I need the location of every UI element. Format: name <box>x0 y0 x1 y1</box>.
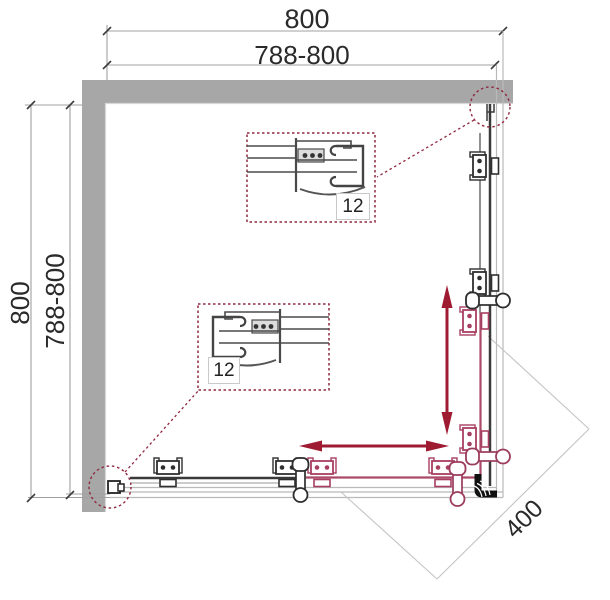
dimension-height-total: 800 <box>6 243 34 363</box>
dimension-width-total: 800 <box>247 5 367 33</box>
wall-profile-end-bracket <box>108 481 124 493</box>
glass-thickness-label-top: 12 <box>336 193 370 220</box>
glass-clamp <box>470 152 499 180</box>
glass-thickness-label-bottom: 12 <box>208 357 240 384</box>
dimension-width-range: 788-800 <box>222 41 382 69</box>
slide-arrow-vertical <box>442 285 453 435</box>
door-handle <box>450 462 466 506</box>
wall-left <box>82 80 106 512</box>
door-handle <box>466 449 510 465</box>
corner-bracket <box>474 474 497 497</box>
slide-arrow-horizontal <box>299 441 449 452</box>
wall-top <box>82 80 513 104</box>
door-roller <box>460 307 489 335</box>
shower-enclosure-diagram: 800 788-800 800 788-800 400 12 12 <box>0 0 610 600</box>
door-dimension-diagonals <box>341 336 589 579</box>
door-roller <box>308 458 336 487</box>
dimension-height-range: 788-800 <box>41 221 69 381</box>
glass-clamp <box>154 458 182 487</box>
door-handle <box>466 293 510 309</box>
